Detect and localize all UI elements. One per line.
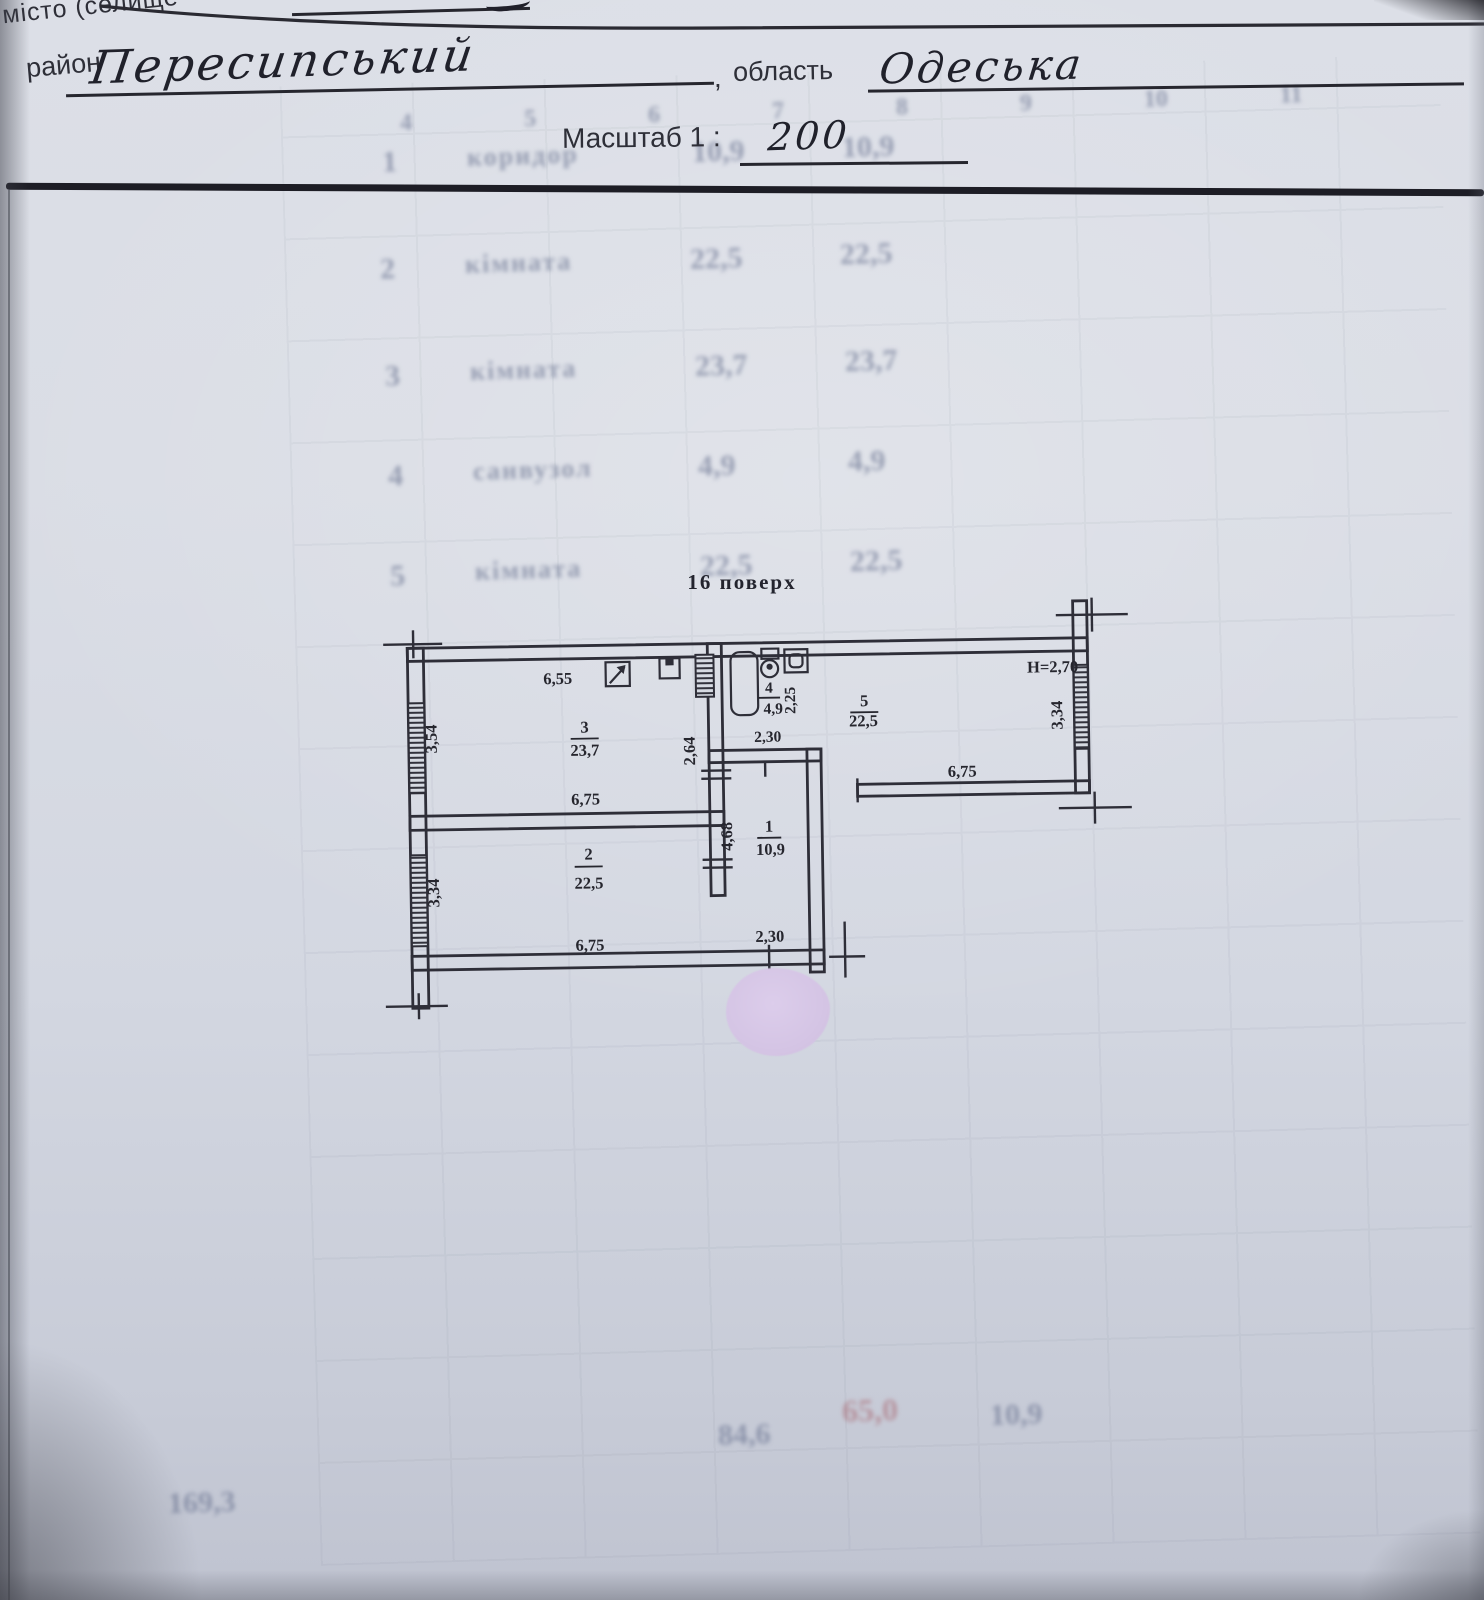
walls <box>407 601 1093 1009</box>
room4-number: 4 <box>765 680 773 697</box>
room2-bottom-dim: 6,75 <box>575 935 604 954</box>
scan-corner-shadow-bottom-left <box>0 1180 300 1600</box>
room3-top-dim: 6,55 <box>543 669 572 688</box>
ghost-total-b: 65,0 <box>841 1391 898 1430</box>
region-handwritten-value: Одеська <box>877 40 1087 94</box>
bathtub-icon <box>730 652 758 715</box>
room1-number: 1 <box>765 817 774 836</box>
region-label: область <box>733 55 834 88</box>
room3-bottom-dim: 6,75 <box>571 789 600 808</box>
scan-corner-shadow-bottom-right <box>1284 1440 1484 1600</box>
room5-right-dim: 3,34 <box>1047 701 1066 730</box>
room3-number: 3 <box>580 718 589 737</box>
ghost-total-a: 84,6 <box>717 1417 771 1453</box>
sink-icon <box>784 649 807 672</box>
room3-area: 23,7 <box>570 740 599 759</box>
windows <box>407 649 1091 947</box>
room2-number: 2 <box>584 845 593 864</box>
scan-edge-shadow-right <box>1468 0 1484 1600</box>
toilet-tank-icon <box>761 649 778 659</box>
comma-separator: , <box>714 62 722 94</box>
room5-area: 22,5 <box>849 711 878 730</box>
top-curved-underline <box>0 0 1484 40</box>
room3-right-dim: 2,64 <box>680 736 699 765</box>
room4-area: 4,9 <box>763 700 783 717</box>
room4-right-dim: 2,25 <box>782 686 799 714</box>
ceiling-height-note: H=2,70 <box>1027 657 1078 677</box>
room1-left-dim: 4,68 <box>717 822 736 851</box>
ghost-total-c: 10,9 <box>989 1397 1043 1433</box>
room5-bottom-dim: 6,75 <box>948 761 977 780</box>
scanned-document-page: 4567891011 1коридор10,910,9 2кімната22,5… <box>0 0 1484 1600</box>
room1-bottom-dim: 2,30 <box>755 927 784 946</box>
room5-number: 5 <box>860 691 869 710</box>
vent-shaft-icon <box>695 655 714 697</box>
dimension-labels: 6,55 3 23,7 6,75 3,54 2,64 2 22,5 6,75 3… <box>421 657 1083 957</box>
room3-left-dim: 3,54 <box>421 724 440 753</box>
room1-area: 10,9 <box>756 839 785 858</box>
scale-handwritten-value: 200 <box>766 113 851 160</box>
scan-corner-shadow-top-right <box>1374 0 1484 20</box>
room4-bottom-dim: 2,30 <box>754 729 782 746</box>
window-room5 <box>1074 665 1089 749</box>
scale-label: Масштаб 1 : <box>562 121 721 155</box>
room2-area: 22,5 <box>574 873 603 892</box>
room2-left-dim: 3,34 <box>424 878 443 907</box>
